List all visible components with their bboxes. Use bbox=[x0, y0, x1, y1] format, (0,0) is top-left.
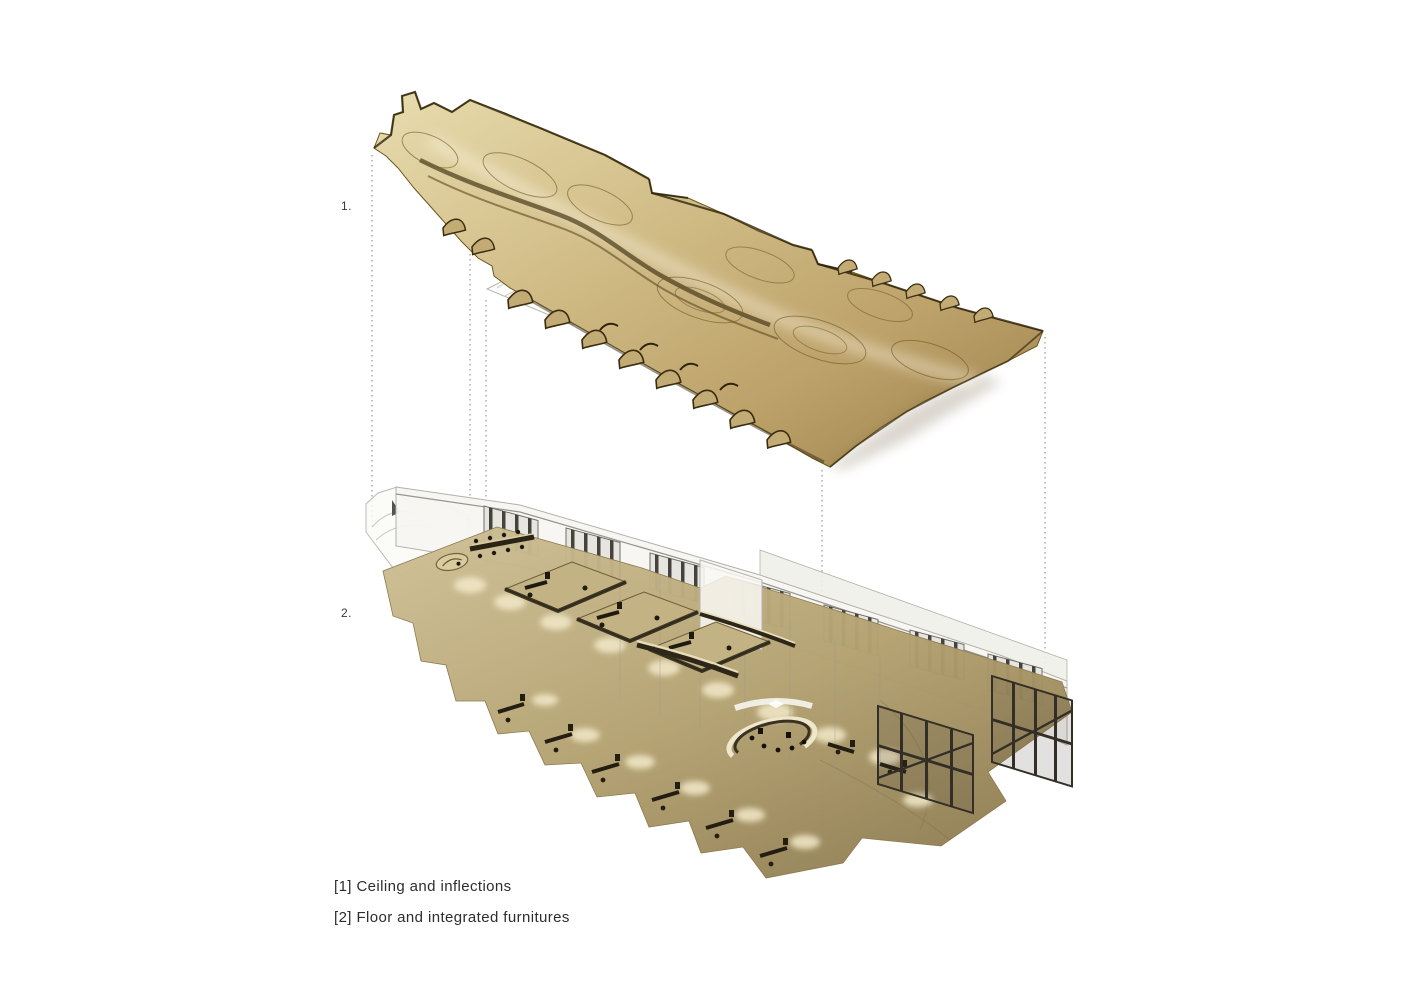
legend-item-ceiling: [1] Ceiling and inflections bbox=[334, 876, 570, 907]
ceiling-surface bbox=[374, 92, 1043, 470]
floor-layer bbox=[366, 487, 1072, 878]
diagram-canvas: 1. 2. [1] Ceiling and inflections [2] Fl… bbox=[0, 0, 1413, 999]
ceiling-layer bbox=[374, 92, 1043, 470]
ceiling-layer-marker: 1. bbox=[341, 199, 352, 213]
legend: [1] Ceiling and inflections [2] Floor an… bbox=[334, 876, 570, 938]
exploded-axonometric-scene bbox=[0, 0, 1413, 999]
floor-layer-marker: 2. bbox=[341, 606, 352, 620]
legend-item-floor: [2] Floor and integrated furnitures bbox=[334, 907, 570, 938]
